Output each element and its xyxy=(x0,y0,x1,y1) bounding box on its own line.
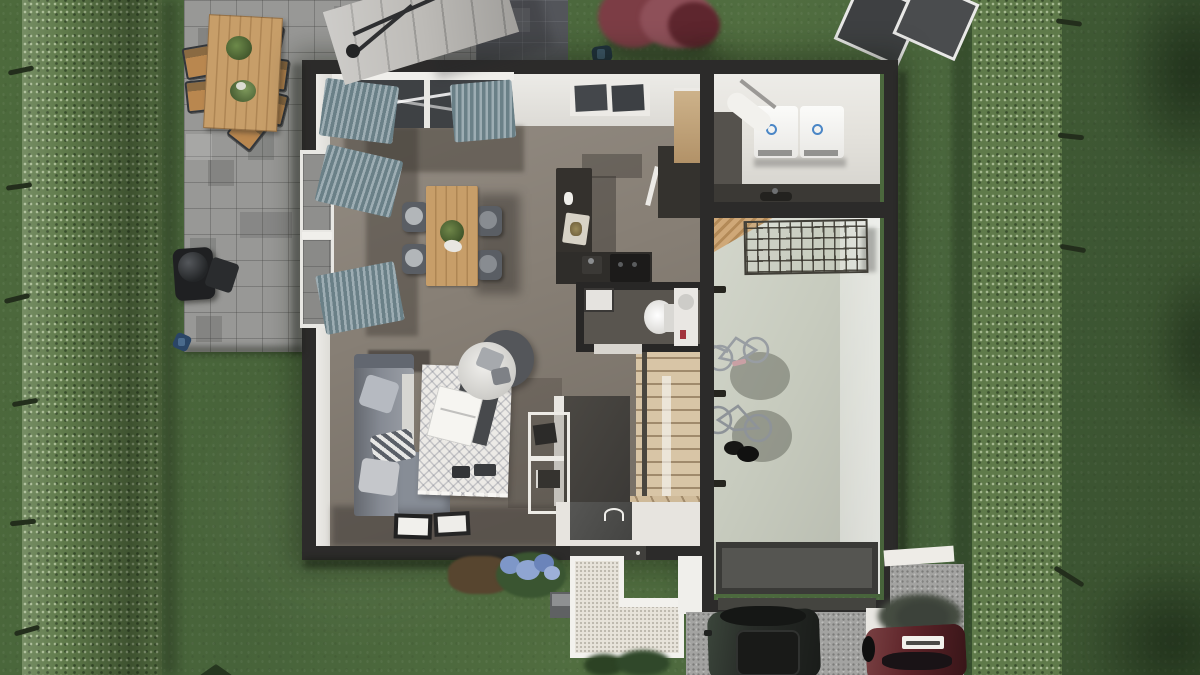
curtain xyxy=(319,78,400,145)
red-shrub xyxy=(668,2,720,48)
garden-blue-object-inner xyxy=(597,49,605,59)
front-door-handle xyxy=(636,551,640,555)
kitchen-window-pane xyxy=(611,84,644,112)
patio-tile xyxy=(186,134,212,160)
tree-shadow xyxy=(1118,0,1200,180)
house-walls-garage xyxy=(700,60,898,614)
bottom-bush xyxy=(616,650,670,675)
hydrangea-bloom xyxy=(544,566,560,580)
car-red-plate-text xyxy=(906,641,940,645)
hedge-right xyxy=(972,0,1062,675)
car-dark-mirror xyxy=(704,630,712,636)
patio-tile xyxy=(196,316,222,342)
wall-utility-garage xyxy=(700,202,898,218)
car-dark-roof xyxy=(736,630,800,675)
parasol-joint xyxy=(346,44,360,58)
white-slab-strip xyxy=(678,556,702,614)
tree-shadow xyxy=(1078,556,1200,675)
car-red-wheel xyxy=(862,636,875,662)
garden-post-top xyxy=(552,594,570,606)
floor-plan-render xyxy=(0,0,1200,675)
outdoor-dining-table xyxy=(203,14,283,132)
wall-shadow-right xyxy=(898,72,907,608)
kitchen-window-pane xyxy=(574,84,607,112)
car-dark-windshield xyxy=(720,606,806,626)
patio-edge-shadow xyxy=(184,346,304,355)
table-plant-flowers xyxy=(236,82,246,90)
left-window-mullion xyxy=(302,232,332,239)
sliding-door-mullion xyxy=(424,80,430,128)
patio-tile xyxy=(208,160,234,186)
hedge-left-shading xyxy=(22,0,162,675)
patio-blue-item-top xyxy=(178,338,185,346)
bbq-grill-lid xyxy=(178,252,208,282)
tree-shadow xyxy=(1150,250,1200,440)
patio-tile xyxy=(240,212,292,238)
curtain xyxy=(450,79,517,142)
car-red-windshield xyxy=(882,652,952,670)
table-plant xyxy=(226,36,252,60)
